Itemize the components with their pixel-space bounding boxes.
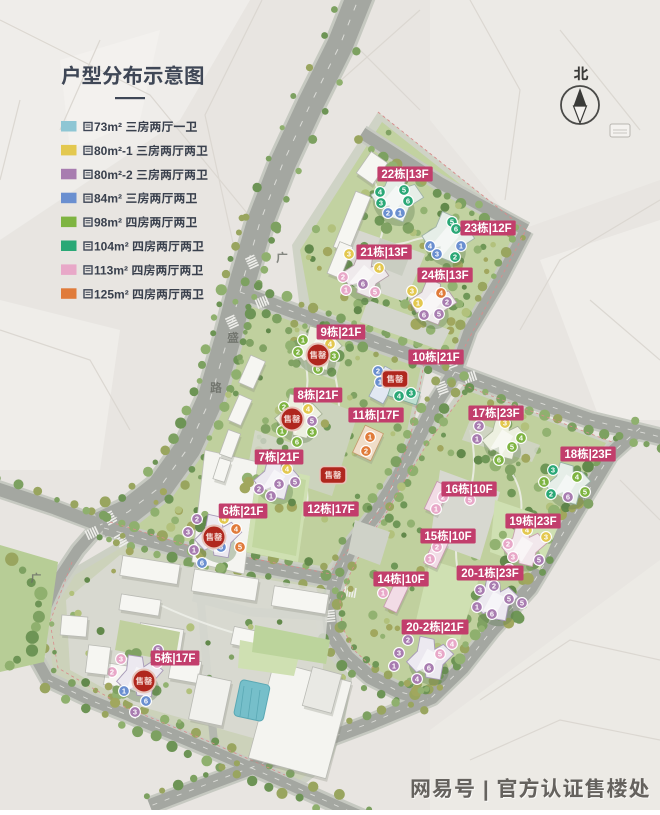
svg-text:3: 3 — [435, 249, 439, 260]
svg-text:2: 2 — [477, 421, 481, 432]
svg-text:9栋|21F: 9栋|21F — [321, 324, 362, 340]
svg-text:网易号 | 官方认证售楼处: 网易号 | 官方认证售楼处 — [410, 773, 651, 803]
svg-text:5: 5 — [402, 185, 406, 196]
svg-text:84m² 三房两厅两卫: 84m² 三房两厅两卫 — [94, 190, 197, 207]
svg-text:16栋|10F: 16栋|10F — [445, 481, 492, 497]
svg-text:18栋|23F: 18栋|23F — [564, 446, 611, 462]
svg-text:22栋|13F: 22栋|13F — [381, 166, 428, 182]
svg-text:5: 5 — [293, 477, 297, 488]
svg-text:3: 3 — [277, 479, 281, 490]
svg-text:5: 5 — [510, 442, 514, 453]
svg-text:1: 1 — [416, 298, 420, 309]
svg-text:1: 1 — [542, 477, 546, 488]
svg-text:3: 3 — [397, 648, 401, 659]
svg-text:1: 1 — [122, 686, 126, 697]
svg-text:23栋|12F: 23栋|12F — [464, 220, 511, 236]
svg-text:1: 1 — [428, 554, 432, 565]
svg-text:3: 3 — [379, 198, 383, 209]
svg-text:7栋|21F: 7栋|21F — [259, 449, 300, 465]
svg-text:2: 2 — [376, 366, 380, 377]
svg-text:1: 1 — [434, 504, 438, 515]
svg-text:1: 1 — [301, 335, 305, 346]
svg-text:路: 路 — [210, 379, 222, 396]
svg-text:3: 3 — [409, 388, 413, 399]
svg-text:1: 1 — [475, 602, 479, 613]
svg-text:1: 1 — [344, 285, 348, 296]
svg-text:2: 2 — [386, 208, 390, 219]
svg-text:2: 2 — [492, 581, 496, 592]
svg-text:售罄: 售罄 — [283, 413, 301, 425]
svg-text:2: 2 — [445, 297, 449, 308]
svg-text:1: 1 — [398, 208, 402, 219]
svg-text:24栋|13F: 24栋|13F — [421, 267, 468, 283]
svg-text:售罄: 售罄 — [309, 349, 327, 361]
svg-text:1: 1 — [459, 241, 463, 252]
svg-text:21栋|13F: 21栋|13F — [360, 244, 407, 260]
svg-text:3: 3 — [332, 351, 336, 362]
svg-text:5栋|17F: 5栋|17F — [155, 650, 196, 666]
svg-text:售罄: 售罄 — [135, 675, 153, 687]
svg-text:1: 1 — [192, 545, 196, 556]
svg-text:5: 5 — [437, 309, 441, 320]
svg-text:12栋|17F: 12栋|17F — [307, 501, 354, 517]
svg-text:北: 北 — [573, 63, 588, 84]
svg-text:5: 5 — [583, 487, 587, 498]
svg-text:2: 2 — [296, 347, 300, 358]
svg-text:2: 2 — [195, 514, 199, 525]
svg-text:17栋|23F: 17栋|23F — [472, 405, 519, 421]
svg-text:10栋|21F: 10栋|21F — [412, 349, 459, 365]
svg-text:6: 6 — [361, 279, 365, 290]
svg-text:3: 3 — [186, 527, 190, 538]
svg-text:20-1栋|23F: 20-1栋|23F — [461, 565, 519, 581]
svg-text:15栋|10F: 15栋|10F — [424, 528, 471, 544]
svg-text:1: 1 — [269, 491, 273, 502]
svg-text:6: 6 — [454, 224, 458, 235]
svg-text:2: 2 — [341, 272, 345, 283]
svg-text:1: 1 — [368, 432, 372, 443]
svg-text:104m² 四房两厅两卫: 104m² 四房两厅两卫 — [94, 238, 204, 255]
svg-text:6: 6 — [295, 437, 299, 448]
svg-text:6: 6 — [422, 310, 426, 321]
svg-text:19栋|23F: 19栋|23F — [509, 513, 556, 529]
svg-text:3: 3 — [133, 707, 137, 718]
svg-text:1: 1 — [475, 434, 479, 445]
svg-text:3: 3 — [310, 427, 314, 438]
svg-text:5: 5 — [537, 555, 541, 566]
svg-text:2: 2 — [406, 635, 410, 646]
svg-text:1: 1 — [392, 661, 396, 672]
svg-text:2: 2 — [453, 252, 457, 263]
svg-text:6: 6 — [566, 492, 570, 503]
svg-text:户型分布示意图: 户型分布示意图 — [61, 59, 205, 89]
svg-text:98m² 四房两厅两卫: 98m² 四房两厅两卫 — [94, 214, 197, 231]
svg-text:售罄: 售罄 — [324, 469, 342, 481]
svg-text:5: 5 — [520, 598, 524, 609]
svg-text:2: 2 — [257, 484, 261, 495]
svg-text:73m² 三房两厅一卫: 73m² 三房两厅一卫 — [94, 118, 197, 135]
svg-text:3: 3 — [119, 654, 123, 665]
svg-text:2: 2 — [506, 539, 510, 550]
svg-text:6栋|21F: 6栋|21F — [223, 503, 264, 519]
svg-text:6: 6 — [497, 455, 501, 466]
svg-text:3: 3 — [410, 286, 414, 297]
svg-text:6: 6 — [144, 696, 148, 707]
svg-text:20-2栋|21F: 20-2栋|21F — [406, 619, 464, 635]
svg-text:3: 3 — [511, 552, 515, 563]
svg-text:6: 6 — [427, 663, 431, 674]
svg-text:113m² 四房两厅两卫: 113m² 四房两厅两卫 — [94, 261, 203, 278]
svg-text:盛: 盛 — [227, 329, 239, 346]
svg-text:125m² 四房两厅两卫: 125m² 四房两厅两卫 — [94, 285, 204, 302]
svg-text:2: 2 — [549, 489, 553, 500]
svg-text:售罄: 售罄 — [386, 373, 404, 385]
svg-text:5: 5 — [310, 416, 314, 427]
svg-text:广: 广 — [276, 249, 288, 266]
svg-text:3: 3 — [551, 465, 555, 476]
svg-text:2: 2 — [110, 667, 114, 678]
svg-text:广: 广 — [31, 570, 42, 586]
svg-text:售罄: 售罄 — [205, 531, 223, 543]
svg-text:3: 3 — [478, 585, 482, 596]
svg-text:6: 6 — [200, 558, 204, 569]
svg-text:3: 3 — [347, 249, 351, 260]
svg-text:6: 6 — [490, 609, 494, 620]
svg-text:5: 5 — [438, 649, 442, 660]
svg-text:3: 3 — [544, 532, 548, 543]
svg-text:11栋|17F: 11栋|17F — [353, 407, 400, 423]
svg-text:80m²-1 三房两厅两卫: 80m²-1 三房两厅两卫 — [94, 142, 208, 159]
svg-text:1: 1 — [381, 588, 385, 599]
svg-text:5: 5 — [238, 542, 242, 553]
svg-text:5: 5 — [507, 594, 511, 605]
svg-text:80m²-2 三房两厅两卫: 80m²-2 三房两厅两卫 — [94, 166, 208, 183]
svg-text:2: 2 — [364, 446, 368, 457]
svg-text:14栋|10F: 14栋|10F — [377, 571, 424, 587]
svg-text:8栋|21F: 8栋|21F — [298, 387, 339, 403]
svg-text:5: 5 — [373, 287, 377, 298]
svg-text:6: 6 — [406, 196, 410, 207]
